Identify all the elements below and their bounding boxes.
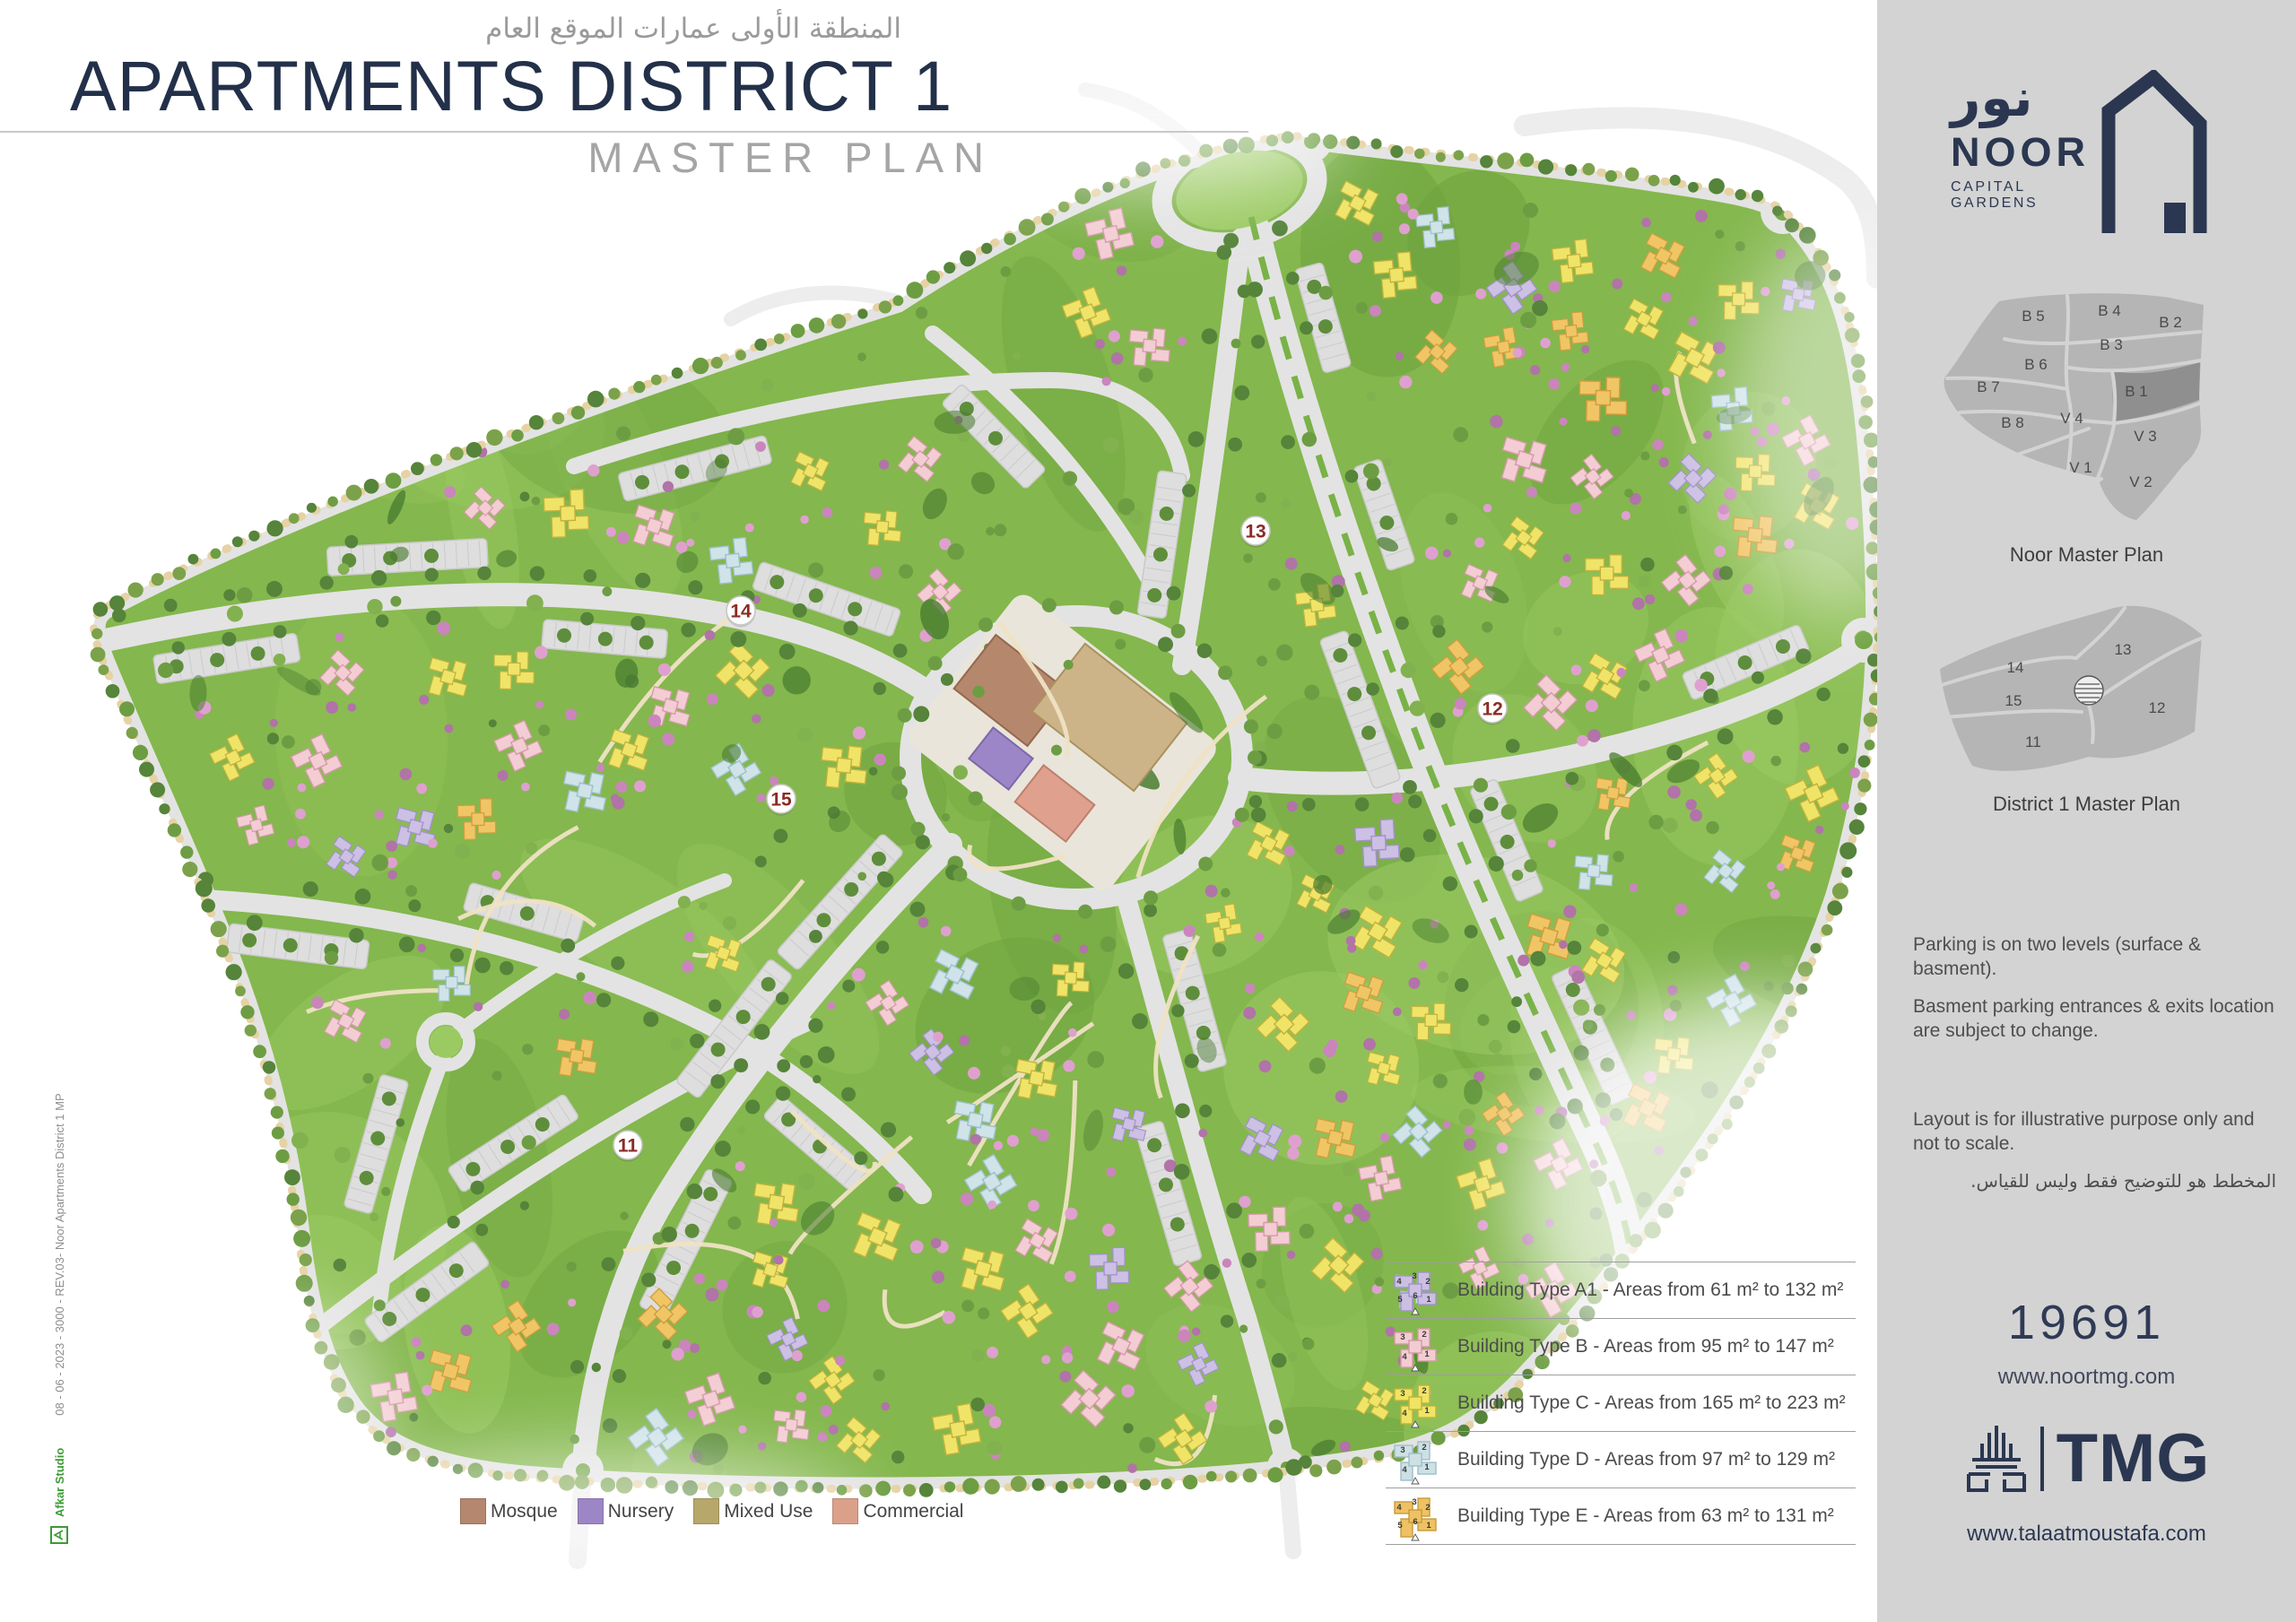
svg-text:15: 15 xyxy=(770,790,792,811)
svg-text:13: 13 xyxy=(1245,522,1265,542)
building-type-row: 3241 Building Type C - Areas from 165 m²… xyxy=(1386,1375,1856,1431)
zone-marker-13: 13 xyxy=(1241,516,1271,548)
logo-divider xyxy=(2040,1427,2044,1491)
minimap-zone-label: V 1 xyxy=(2069,459,2092,476)
afkar-studio-icon xyxy=(50,1526,68,1544)
building-type-d-icon: 3241 xyxy=(1387,1434,1443,1486)
minimap-zone-label: B 7 xyxy=(1977,378,2000,395)
minimap-zone-label: 14 xyxy=(2007,659,2024,676)
noor-brand: نور NOOR CAPITAL GARDENS xyxy=(1877,54,2296,278)
revision-text: 08 - 06 - 2023 - 3000 - REV.03- Noor Apa… xyxy=(53,1093,66,1415)
legend-item-nursery: Nursery xyxy=(578,1498,674,1524)
district-minimap-caption: District 1 Master Plan xyxy=(1877,793,2296,816)
svg-text:4: 4 xyxy=(1402,1352,1407,1362)
minimap-zone-label: 15 xyxy=(2005,692,2022,709)
info-sidebar: نور NOOR CAPITAL GARDENS B 5B 4B 2B 3B 6… xyxy=(1877,0,2296,1622)
tmg-name: TMG xyxy=(2057,1425,2211,1493)
svg-text:2: 2 xyxy=(1422,1386,1426,1396)
svg-text:2: 2 xyxy=(1425,1503,1430,1513)
svg-text:11: 11 xyxy=(618,1136,639,1157)
minimap-zone-label: 13 xyxy=(2115,641,2132,658)
minimap-zone-label: 11 xyxy=(2025,733,2041,750)
svg-text:2: 2 xyxy=(1422,1443,1426,1453)
building-type-e-icon: 432561 xyxy=(1387,1490,1443,1542)
svg-text:4: 4 xyxy=(1402,1409,1407,1418)
brand-tagline: CAPITAL GARDENS xyxy=(1951,179,2101,212)
tmg-calligraphy-icon xyxy=(1963,1424,2030,1494)
minimap-zone-label: V 4 xyxy=(2060,410,2083,427)
noor-master-plan-minimap: B 5B 4B 2B 3B 6B 7B 1B 8V 4V 3V 1V 2 xyxy=(1935,285,2213,532)
note-layout: Layout is for illustrative purpose only … xyxy=(1913,1107,2276,1157)
minimap-zone-label: B 1 xyxy=(2125,383,2148,400)
svg-text:12: 12 xyxy=(1482,699,1502,720)
building-type-row: 432561 Building Type A1 - Areas from 61 … xyxy=(1386,1262,1856,1318)
minimap-zone-label: B 3 xyxy=(2100,336,2123,353)
building-type-row: 3241 Building Type B - Areas from 95 m² … xyxy=(1386,1318,1856,1375)
revision-stamp: Afkar Studio 08 - 06 - 2023 - 3000 - REV… xyxy=(50,1093,68,1544)
commercial-swatch xyxy=(832,1498,858,1524)
legend-item-mixed-use: Mixed Use xyxy=(693,1498,813,1524)
svg-text:1: 1 xyxy=(1426,1521,1431,1531)
svg-text:3: 3 xyxy=(1412,1497,1416,1507)
minimap-zone-label: 12 xyxy=(2149,699,2166,716)
svg-text:1: 1 xyxy=(1426,1295,1431,1305)
svg-text:3: 3 xyxy=(1412,1271,1416,1281)
facility-legend: Mosque Nursery Mixed Use Commercial xyxy=(460,1498,983,1524)
svg-text:6: 6 xyxy=(1413,1291,1417,1301)
svg-text:3: 3 xyxy=(1400,1389,1405,1399)
svg-text:4: 4 xyxy=(1402,1465,1407,1475)
svg-text:5: 5 xyxy=(1397,1521,1403,1531)
svg-text:1: 1 xyxy=(1424,1406,1430,1416)
district-1-minimap: 1314151211 xyxy=(1935,599,2213,783)
svg-text:14: 14 xyxy=(730,602,752,622)
svg-text:2: 2 xyxy=(1425,1277,1430,1287)
page-title-arabic: المنطقة الأولى عمارات الموقع العام xyxy=(72,13,901,45)
lake-icon xyxy=(2074,676,2103,705)
tmg-logo: TMG xyxy=(1877,1424,2296,1494)
svg-text:1: 1 xyxy=(1424,1462,1430,1472)
building-type-legend: 432561 Building Type A1 - Areas from 61 … xyxy=(1386,1262,1856,1545)
zone-marker-14: 14 xyxy=(726,596,756,628)
svg-text:3: 3 xyxy=(1400,1445,1405,1455)
minimap-zone-label: B 4 xyxy=(2098,302,2121,319)
nursery-swatch xyxy=(578,1498,604,1524)
disclaimer-notes: Parking is on two levels (surface & basm… xyxy=(1913,932,2276,1205)
mosque-swatch xyxy=(460,1498,486,1524)
building-type-row: 3241 Building Type D - Areas from 97 m² … xyxy=(1386,1431,1856,1488)
minimap-zone-label: B 6 xyxy=(2024,356,2048,373)
mixed-use-swatch xyxy=(693,1498,719,1524)
noor-website: www.noortmg.com xyxy=(1877,1365,2296,1390)
legend-item-commercial: Commercial xyxy=(832,1498,963,1524)
building-type-b-icon: 3241 xyxy=(1387,1321,1443,1373)
zone-marker-12: 12 xyxy=(1478,694,1508,725)
zone-marker-15: 15 xyxy=(767,785,796,816)
studio-name: Afkar Studio xyxy=(53,1448,66,1517)
page-subtitle: MASTER PLAN xyxy=(0,133,994,182)
note-basement: Basment parking entrances & exits locati… xyxy=(1913,994,2276,1044)
minimap-zone-label: B 2 xyxy=(2159,314,2182,331)
brand-arabic: نور xyxy=(1951,72,2101,124)
brand-name: NOOR xyxy=(1951,129,2101,176)
tmg-website: www.talaatmoustafa.com xyxy=(1877,1522,2296,1547)
svg-text:5: 5 xyxy=(1397,1295,1403,1305)
svg-text:4: 4 xyxy=(1396,1277,1402,1287)
noor-building-icon xyxy=(2101,70,2218,240)
svg-text:6: 6 xyxy=(1413,1517,1417,1527)
minimap-zone-label: V 3 xyxy=(2134,428,2157,445)
note-layout-arabic: المخطط هو للتوضيح فقط وليس للقياس. xyxy=(1913,1169,2276,1193)
svg-text:3: 3 xyxy=(1400,1332,1405,1342)
minimap-zone-label: B 8 xyxy=(2001,414,2024,431)
building-type-a1-icon: 432561 xyxy=(1387,1264,1443,1316)
page-title: APARTMENTS DISTRICT 1 xyxy=(70,45,952,127)
svg-text:4: 4 xyxy=(1396,1503,1402,1513)
zone-marker-11: 11 xyxy=(613,1131,643,1162)
building-type-c-icon: 3241 xyxy=(1387,1377,1443,1429)
svg-text:1: 1 xyxy=(1424,1349,1430,1359)
note-parking: Parking is on two levels (surface & basm… xyxy=(1913,932,2276,982)
project-code: 19691 xyxy=(1877,1295,2296,1350)
minimap-zone-label: B 5 xyxy=(2022,308,2045,325)
svg-text:2: 2 xyxy=(1422,1330,1426,1340)
building-type-row: 432561 Building Type E - Areas from 63 m… xyxy=(1386,1488,1856,1545)
noor-minimap-caption: Noor Master Plan xyxy=(1877,543,2296,567)
legend-item-mosque: Mosque xyxy=(460,1498,558,1524)
minimap-zone-label: V 2 xyxy=(2129,473,2152,490)
